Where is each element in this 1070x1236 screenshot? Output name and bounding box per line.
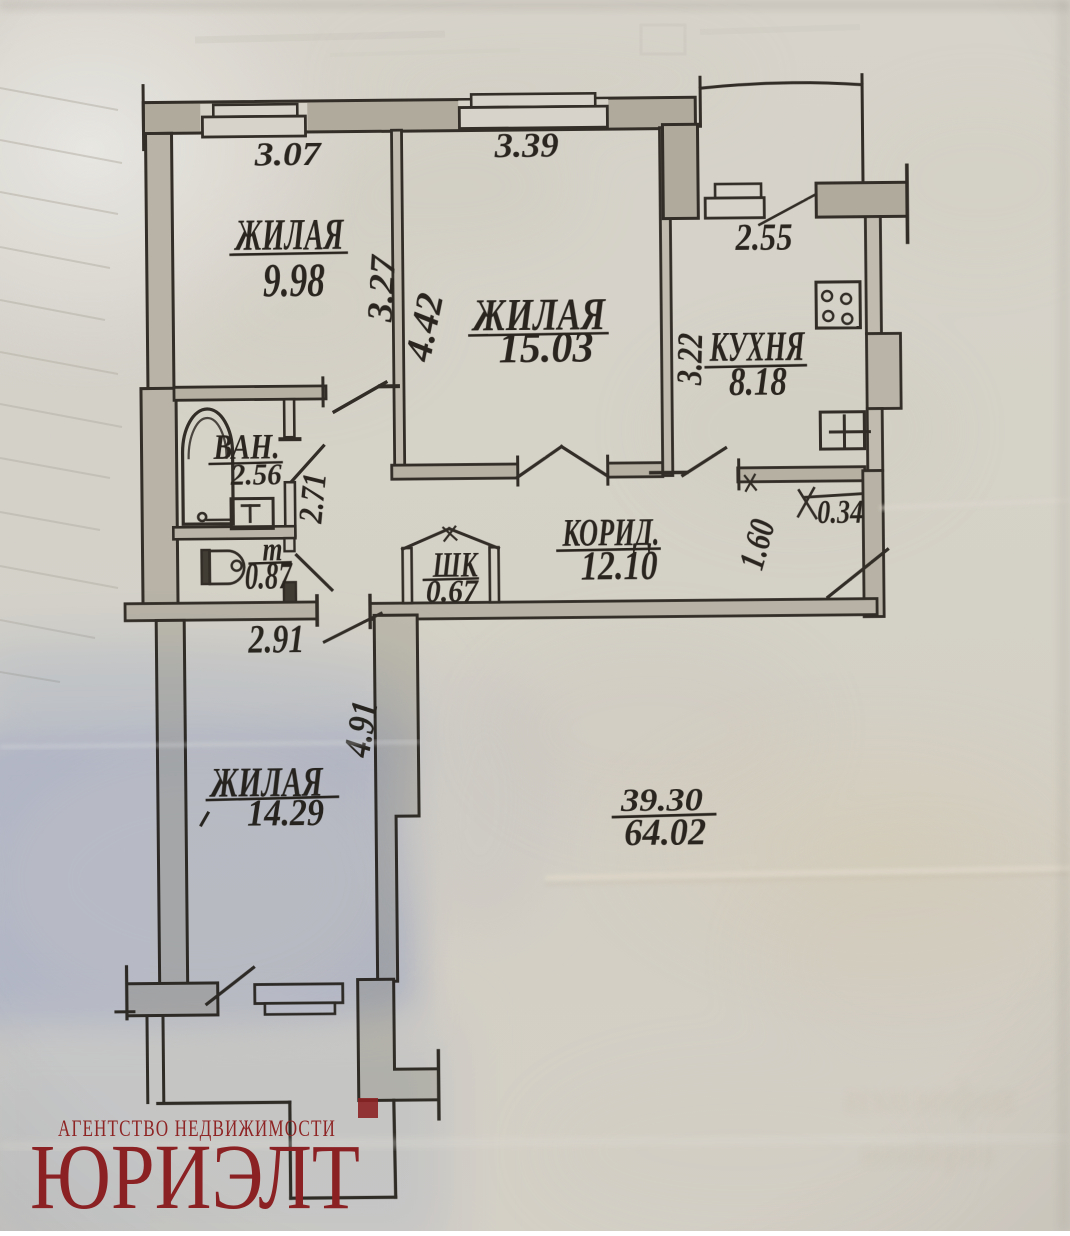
svg-text:ЮРИЭЛТ: ЮРИЭЛТ [30, 1126, 360, 1229]
